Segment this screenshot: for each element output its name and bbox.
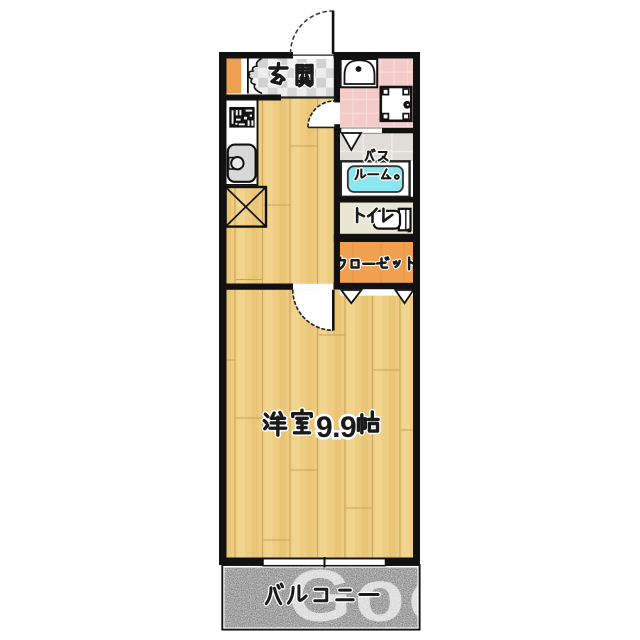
svg-text:9.9: 9.9 — [316, 411, 356, 444]
